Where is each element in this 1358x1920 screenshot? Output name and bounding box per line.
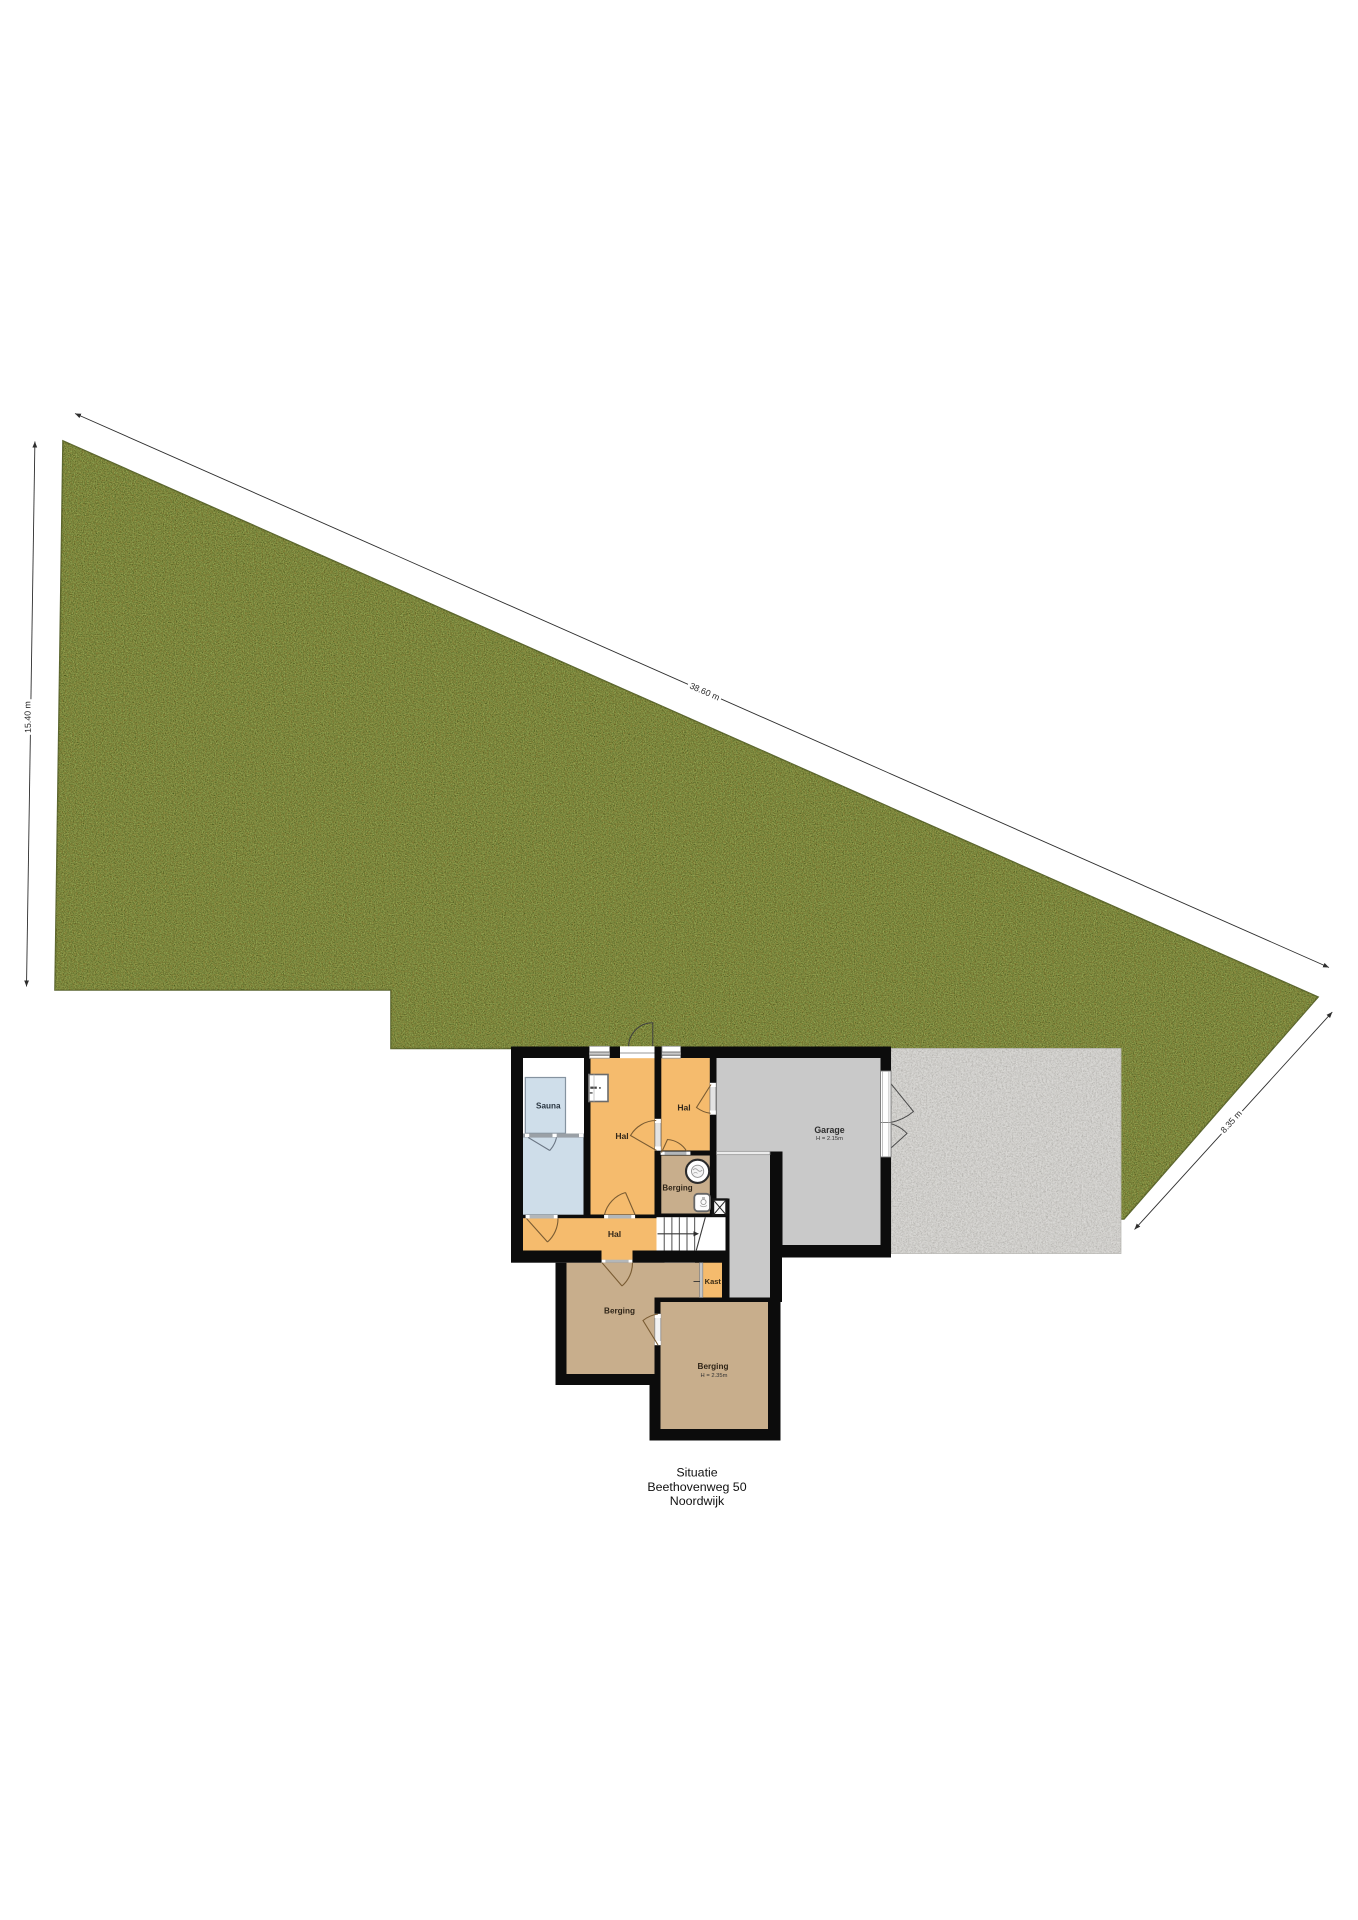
svg-text:15.40 m: 15.40 m <box>22 701 33 733</box>
svg-text:Noordwijk: Noordwijk <box>670 1494 725 1508</box>
svg-text:Hal: Hal <box>677 1103 690 1113</box>
svg-text:Kast: Kast <box>705 1277 722 1286</box>
svg-text:Sauna: Sauna <box>536 1102 561 1111</box>
svg-text:Hal: Hal <box>608 1229 621 1239</box>
svg-text:H = 2.15m: H = 2.15m <box>816 1136 843 1142</box>
svg-text:Berging: Berging <box>604 1307 635 1316</box>
svg-text:H = 2.35m: H = 2.35m <box>701 1373 728 1379</box>
svg-text:Hal: Hal <box>615 1131 628 1141</box>
svg-text:Beethovenweg 50: Beethovenweg 50 <box>647 1480 746 1494</box>
svg-text:Berging: Berging <box>662 1184 692 1193</box>
svg-text:Situatie: Situatie <box>676 1466 717 1480</box>
svg-text:Berging: Berging <box>698 1362 729 1371</box>
svg-text:Garage: Garage <box>814 1125 844 1135</box>
